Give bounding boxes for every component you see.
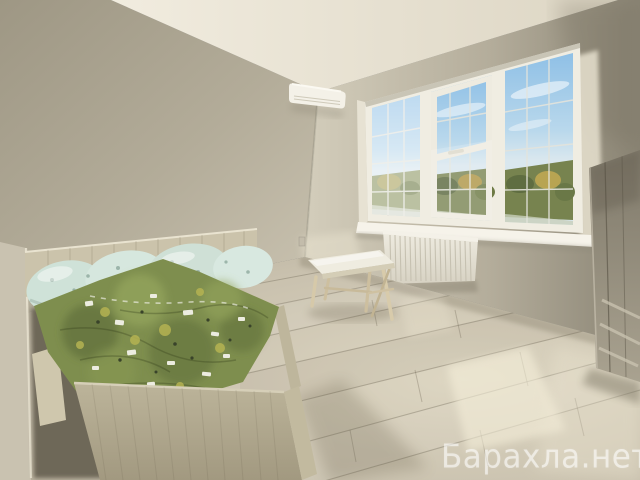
footboard-panel bbox=[74, 383, 317, 480]
scene-canvas bbox=[0, 0, 640, 480]
wall-socket bbox=[299, 237, 305, 246]
bedroom-photo: Барахла.нет bbox=[0, 0, 640, 480]
bench-shadow bbox=[308, 304, 396, 322]
glass-glare bbox=[372, 95, 420, 217]
glass-glare-mid bbox=[431, 140, 492, 221]
